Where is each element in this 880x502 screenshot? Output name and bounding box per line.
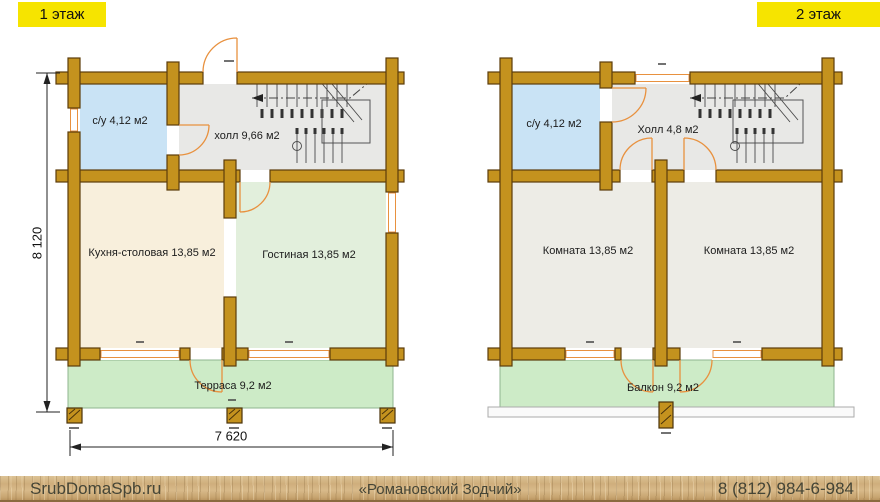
floor1-hall-label: холл 9,66 м2 <box>214 130 279 142</box>
floor2-hall-label: Холл 4,8 м2 <box>637 124 698 136</box>
floor1-living-area <box>236 182 386 348</box>
floor1-kitchen-label: Кухня-столовая 13,85 м2 <box>88 247 215 259</box>
floor2-room-right-area <box>667 182 822 348</box>
floor2-bathroom-label: с/у 4,12 м2 <box>526 118 581 130</box>
floor2-balcony-post <box>659 402 673 433</box>
floor1-entrance-door <box>203 38 237 72</box>
floor2-tag: 2 этаж <box>757 2 880 27</box>
floor1-bathroom-area <box>80 84 167 170</box>
footer-banner: SrubDomaSpb.ru «Романовский Зодчий» 8 (8… <box>0 476 880 502</box>
floor2-tag-label: 2 этаж <box>796 6 841 23</box>
footer-phone: 8 (812) 984-6-984 <box>718 479 854 499</box>
floor2-room-left-area <box>512 182 655 348</box>
floorplan-page: 1 этаж 2 этаж с/у 4,12 м2 холл 9,66 м2 К… <box>0 0 880 502</box>
width-dimension-label: 7 620 <box>215 429 248 444</box>
floor1-kitchen-area <box>80 182 224 348</box>
floor1-tag: 1 этаж <box>18 2 106 27</box>
floor1-tag-label: 1 этаж <box>40 6 85 23</box>
floor2-balcony-label: Балкон 9,2 м2 <box>627 382 699 394</box>
floor1-hall-area <box>179 84 386 170</box>
floor1-terrace-posts <box>67 408 395 428</box>
floor1-bathroom-label: с/у 4,12 м2 <box>92 115 147 127</box>
floor1-terrace-label: Терраса 9,2 м2 <box>194 380 271 392</box>
floor1-living-label: Гостиная 13,85 м2 <box>262 249 356 261</box>
height-dimension-label: 8 120 <box>30 227 45 260</box>
floor2-room-left-label: Комната 13,85 м2 <box>543 245 633 257</box>
floor2-room-right-label: Комната 13,85 м2 <box>704 245 794 257</box>
